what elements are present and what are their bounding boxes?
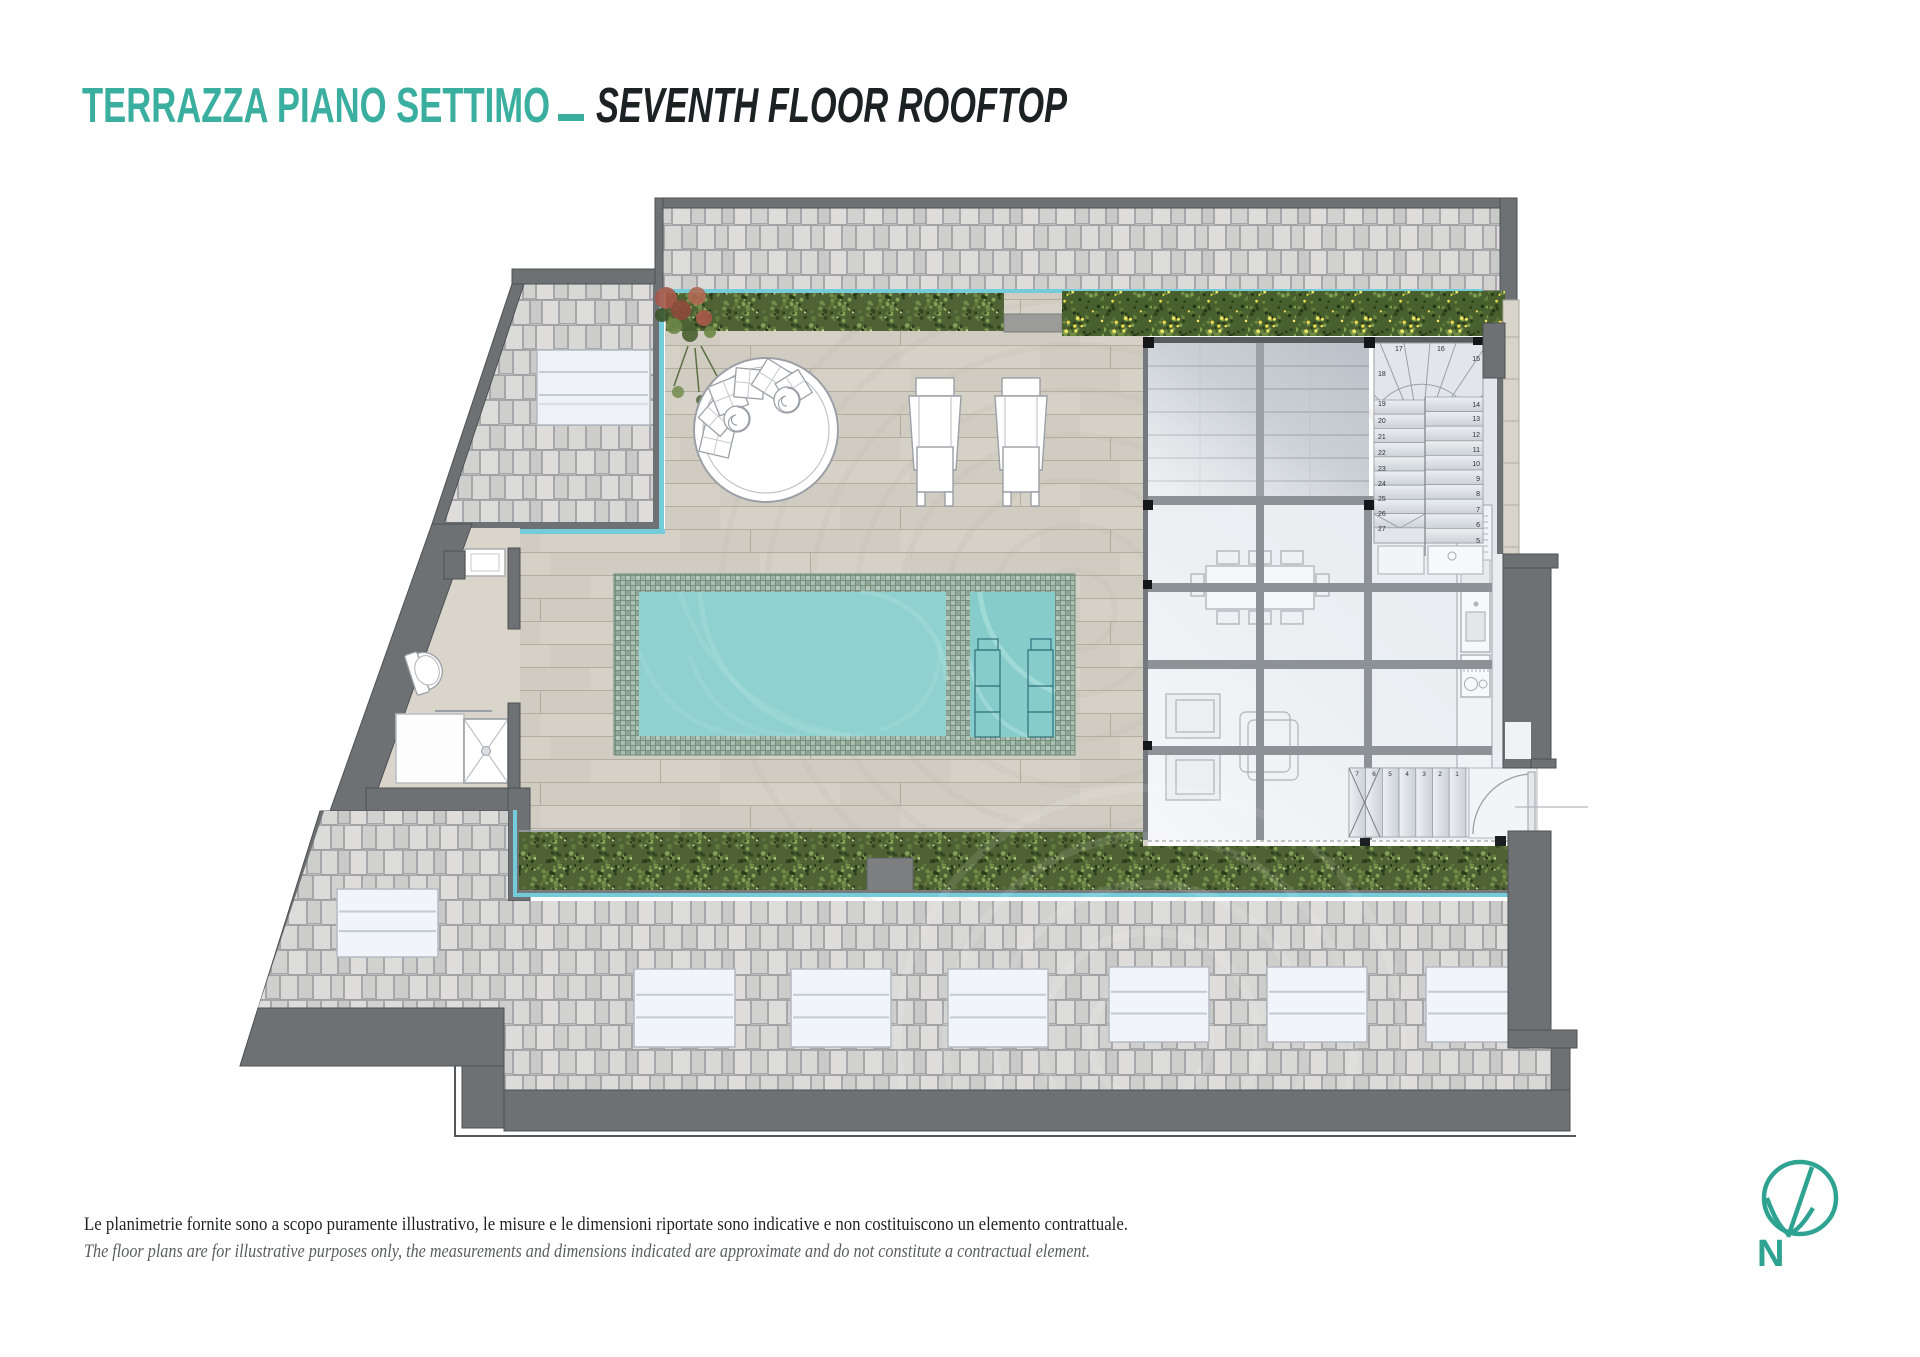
svg-text:9: 9 [1476, 476, 1480, 483]
svg-text:The floor plans are for illust: The floor plans are for illustrative pur… [84, 1241, 1090, 1262]
svg-text:19: 19 [1378, 401, 1386, 408]
svg-text:18: 18 [1378, 371, 1386, 378]
svg-text:12: 12 [1472, 432, 1480, 439]
svg-text:4: 4 [1405, 771, 1409, 778]
svg-text:22: 22 [1378, 450, 1386, 457]
svg-text:N: N [1757, 1233, 1784, 1275]
svg-text:27: 27 [1378, 526, 1386, 533]
svg-text:7: 7 [1355, 771, 1359, 778]
svg-text:Le planimetrie fornite sono a: Le planimetrie fornite sono a scopo pura… [84, 1214, 1128, 1235]
svg-text:14: 14 [1472, 402, 1480, 409]
svg-text:17: 17 [1395, 346, 1403, 353]
svg-text:26: 26 [1378, 511, 1386, 518]
svg-text:8: 8 [1476, 491, 1480, 498]
svg-text:15: 15 [1472, 356, 1480, 363]
svg-text:5: 5 [1476, 538, 1480, 545]
svg-text:20: 20 [1378, 418, 1386, 425]
svg-text:21: 21 [1378, 434, 1386, 441]
svg-text:5: 5 [1388, 771, 1392, 778]
svg-text:1: 1 [1455, 771, 1459, 778]
svg-text:SEVENTH FLOOR ROOFTOP: SEVENTH FLOOR ROOFTOP [596, 79, 1067, 133]
svg-text:13: 13 [1472, 416, 1480, 423]
svg-text:10: 10 [1472, 461, 1480, 468]
svg-text:2: 2 [1438, 771, 1442, 778]
svg-text:11: 11 [1473, 447, 1480, 454]
svg-text:7: 7 [1476, 507, 1480, 514]
svg-text:6: 6 [1476, 522, 1480, 529]
svg-text:24: 24 [1378, 481, 1386, 488]
svg-text:23: 23 [1378, 466, 1386, 473]
svg-text:25: 25 [1378, 496, 1386, 503]
svg-text:TERRAZZA PIANO SETTIMO: TERRAZZA PIANO SETTIMO [82, 79, 550, 133]
svg-text:16: 16 [1437, 346, 1445, 353]
svg-text:3: 3 [1422, 771, 1426, 778]
